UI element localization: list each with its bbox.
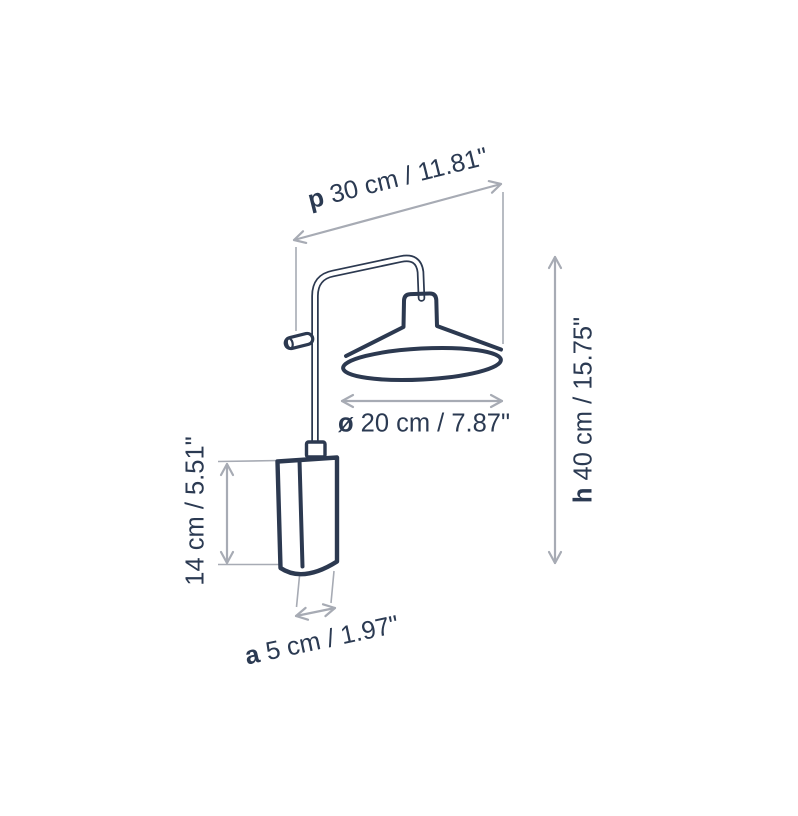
mount-width-extension-left (297, 576, 300, 607)
diagram-line-art (0, 0, 798, 816)
dimension-diagram: p 30 cm / 11.81" h 40 cm / 15.75" ø 20 c… (0, 0, 798, 816)
lamp-mount-collar (307, 442, 326, 457)
diameter-dimension-label: ø 20 cm / 7.87" (338, 410, 510, 439)
mount-height-value: 14 cm / 5.51" (182, 436, 210, 585)
lamp-shade-rim (342, 344, 501, 383)
lamp-switch-knob (284, 332, 314, 349)
extension-lines (218, 192, 503, 607)
mount-height-dimension-arrow (221, 464, 233, 563)
mount-width-extension-right (331, 571, 334, 603)
diameter-prefix: ø (338, 410, 354, 438)
height-prefix: h (570, 488, 598, 504)
mount-width-dimension-arrow (296, 604, 335, 619)
cylinder-front-edge (300, 460, 303, 567)
diameter-dimension-arrow (342, 395, 502, 407)
height-dimension-label: h 40 cm / 15.75" (570, 317, 599, 503)
mount-height-extension-top (218, 461, 279, 462)
mount-height-dimension-label: 14 cm / 5.51" (182, 436, 211, 585)
diameter-value: 20 cm / 7.87" (361, 410, 510, 438)
lamp-mount-cylinder (278, 458, 338, 575)
height-value: 40 cm / 15.75" (570, 317, 598, 481)
height-dimension-arrow (549, 257, 561, 563)
